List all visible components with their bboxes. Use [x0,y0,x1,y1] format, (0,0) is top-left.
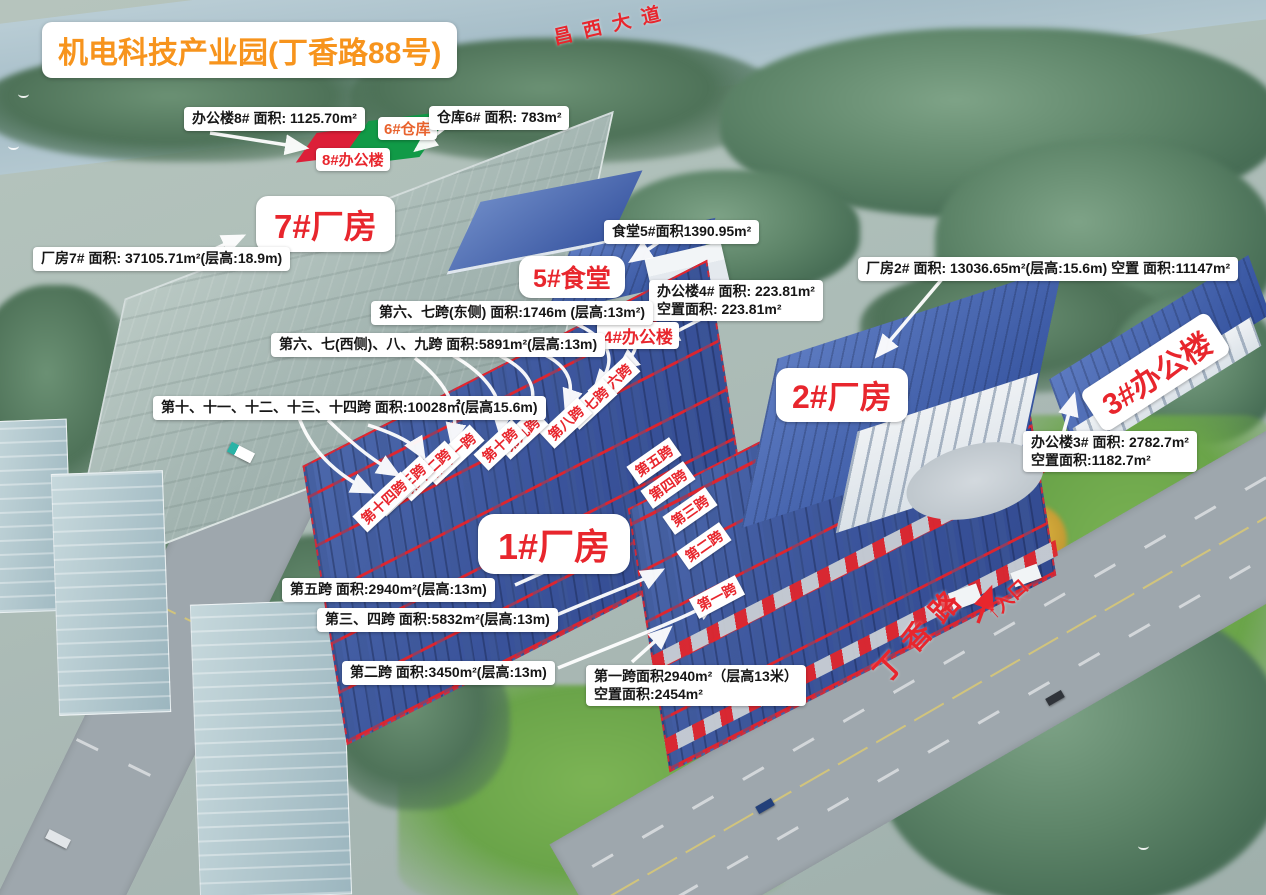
callout-office4: 办公楼4# 面积: 223.81m² 空置面积: 223.81m² [649,280,823,321]
callout-office4-line1: 办公楼4# 面积: 223.81m² [657,283,815,301]
bird [8,142,19,150]
building-tag-canteen5: 5#食堂 [519,256,625,298]
callout-span67east: 第六、七跨(东侧) 面积:1746m (层高:13m²) [371,301,653,325]
callout-span10-14: 第十、十一、十二、十三、十四跨 面积:10028㎡(层高15.6m) [153,396,546,420]
callout-span2: 第二跨 面积:3450m²(层高:13m) [342,661,555,685]
callout-office3-line2: 空置面积:1182.7m² [1031,452,1189,470]
callout-office3: 办公楼3# 面积: 2782.7m² 空置面积:1182.7m² [1023,431,1197,472]
callout-office4-line2: 空置面积: 223.81m² [657,301,815,319]
building-tag-factory7: 7#厂房 [256,196,395,252]
callout-span5: 第五跨 面积:2940m²(层高:13m) [282,578,495,602]
callout-office8: 办公楼8# 面积: 1125.70m² [184,107,365,131]
callout-warehouse6: 仓库6# 面积: 783m² [429,106,569,130]
bird [1138,842,1149,850]
glass-building [190,599,352,895]
callout-span6789west: 第六、七(西侧)、八、九跨 面积:5891m²(层高:13m) [271,333,605,357]
callout-factory2: 厂房2# 面积: 13036.65m²(层高:15.6m) 空置 面积:1114… [858,257,1238,281]
callout-factory7: 厂房7# 面积: 37105.71m²(层高:18.9m) [33,247,290,271]
glass-building [51,470,171,716]
park-title: 机电科技产业园(丁香路88号) [42,22,457,78]
building-tag-warehouse6: 6#仓库 [378,117,437,140]
building-tag-office8: 8#办公楼 [316,148,390,171]
building-tag-office4: 4#办公楼 [597,322,679,349]
site-plan: 机电科技产业园(丁香路88号) 昌西大道 丁香路 ↑入口 办公楼8# 面积: 1… [0,0,1266,895]
callout-span1-line1: 第一跨面积2940m²（层高13米） [594,668,798,686]
callout-office3-line1: 办公楼3# 面积: 2782.7m² [1031,434,1189,452]
bird [18,90,29,98]
callout-span1: 第一跨面积2940m²（层高13米） 空置面积:2454m² [586,665,806,706]
callout-span1-line2: 空置面积:2454m² [594,686,798,704]
callout-canteen5: 食堂5#面积1390.95m² [604,220,759,244]
building-tag-factory2: 2#厂房 [776,368,908,422]
callout-span34: 第三、四跨 面积:5832m²(层高:13m) [317,608,558,632]
building-tag-factory1: 1#厂房 [478,514,630,574]
